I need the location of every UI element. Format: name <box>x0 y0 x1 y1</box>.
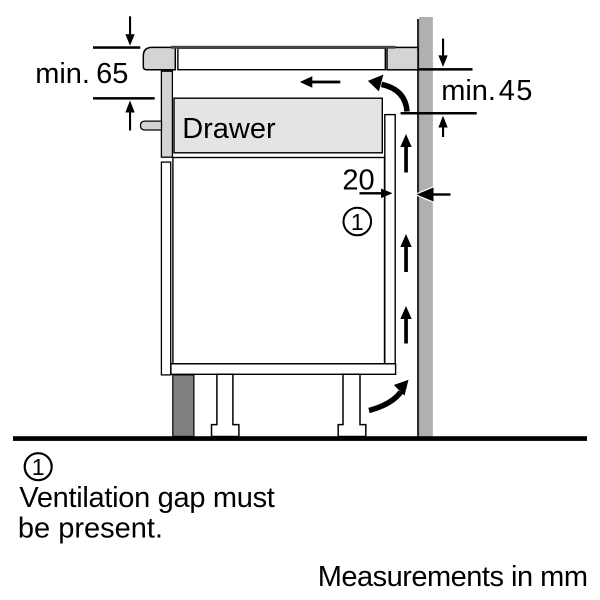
svg-text:1: 1 <box>351 209 364 235</box>
svg-text:65: 65 <box>96 58 128 90</box>
svg-text:Ventilation gap must: Ventilation gap must <box>19 482 274 514</box>
svg-text:min.: min. <box>35 58 90 90</box>
svg-text:20: 20 <box>342 165 374 197</box>
svg-text:be present.: be present. <box>18 513 163 545</box>
svg-text:Measurements in mm: Measurements in mm <box>318 561 588 593</box>
svg-text:Drawer: Drawer <box>182 113 276 145</box>
svg-text:45: 45 <box>499 75 534 107</box>
svg-text:min.: min. <box>441 75 496 107</box>
svg-text:1: 1 <box>32 454 45 480</box>
